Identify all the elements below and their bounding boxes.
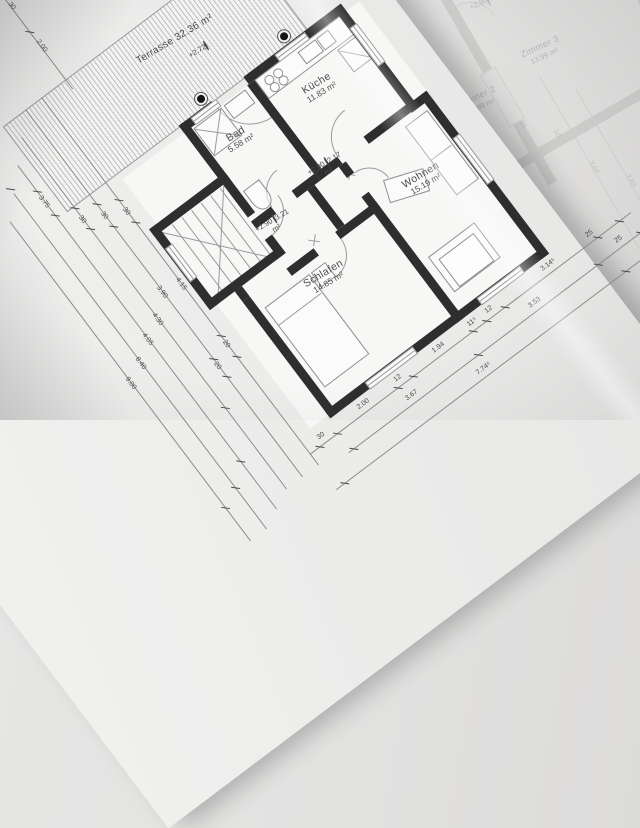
dimension-label: 25 [613, 234, 623, 244]
dimension-label: 25 [584, 229, 594, 239]
floor-plan-photo: { "sheet1": { "rooms": { "terrasse": { "… [0, 0, 640, 420]
main-plan-sheet: Terrasse 32.36 m² +2.72 Küche 11.83 m² B… [0, 0, 640, 616]
